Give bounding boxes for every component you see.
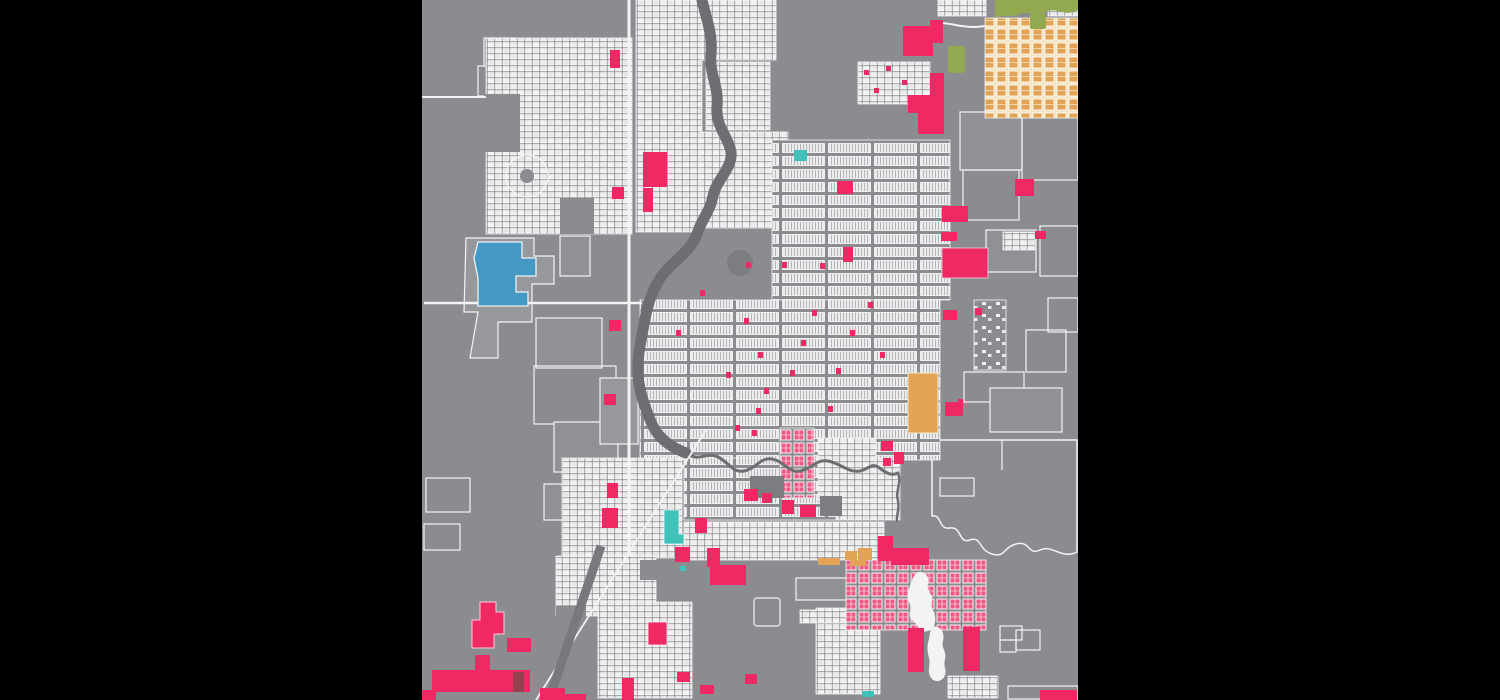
bottom-grid: [948, 676, 998, 698]
pink-parcel: [677, 672, 690, 682]
parcel-outline: [560, 236, 590, 276]
orange-parcel-large: [908, 373, 938, 433]
pink-parcel: [942, 206, 968, 222]
pink-parcel: [843, 247, 853, 262]
pink-parcel: [881, 441, 893, 451]
pink-parcel: [903, 26, 933, 56]
pink-fleck: [880, 352, 885, 358]
pink-fleck: [744, 318, 749, 324]
wash-blob: [928, 627, 946, 681]
pink-parcel: [710, 565, 746, 585]
maroon-parcel: [513, 672, 524, 692]
pink-parcel: [610, 50, 620, 68]
pink-fleck: [902, 80, 907, 85]
top-grid: [938, 0, 986, 16]
pink-fleck: [850, 330, 855, 336]
parcel-outline: [536, 318, 602, 368]
parcel-outline: [960, 112, 1022, 170]
pink-fleck: [752, 430, 757, 436]
pink-parcel: [643, 152, 667, 187]
grid-gap: [640, 560, 664, 580]
pink-parcel: [958, 399, 963, 415]
pink-parcel: [648, 622, 667, 645]
pink-fleck: [735, 425, 740, 431]
pink-parcel: [782, 500, 794, 514]
pink-parcel: [744, 489, 758, 501]
pink-fleck: [726, 372, 731, 378]
pink-parcel: [930, 20, 943, 43]
pink-parcel: [607, 483, 618, 498]
map-container: [422, 0, 1078, 700]
pink-fleck: [868, 302, 873, 308]
dark-parcel: [820, 496, 842, 516]
pink-parcel: [675, 547, 690, 562]
letterbox-background: [0, 0, 1500, 700]
green-parcel: [1030, 14, 1046, 29]
pink-fleck: [676, 330, 681, 336]
pink-parcel: [908, 95, 930, 113]
pink-fleck: [820, 263, 825, 269]
pink-parcel: [883, 458, 891, 466]
pink-parcel: [941, 232, 957, 241]
pink-parcel: [837, 181, 853, 194]
pink-parcel: [1035, 231, 1046, 239]
orange-subdivision: [985, 18, 1078, 118]
pink-parcel: [695, 518, 707, 533]
pink-parcel: [800, 505, 816, 517]
parcel-map: [422, 0, 1078, 700]
pink-fleck: [790, 370, 795, 376]
sw-subdivision-grid: [598, 602, 692, 698]
grid-gap: [484, 94, 520, 152]
pink-parcel: [918, 112, 944, 134]
pink-fleck: [746, 262, 751, 268]
teal-fleck: [862, 691, 874, 697]
pink-fleck: [801, 340, 806, 346]
pink-parcel: [609, 320, 621, 331]
pink-fleck: [700, 290, 705, 296]
pink-fleck: [836, 368, 841, 374]
small-grid: [1003, 232, 1035, 250]
pink-parcel: [540, 688, 565, 700]
orange-parcel-small: [818, 558, 840, 565]
pink-parcel: [564, 694, 586, 700]
pink-parcel: [963, 627, 980, 671]
pink-fleck: [758, 352, 763, 358]
pink-parcel-large: [942, 248, 988, 278]
pink-fleck: [764, 388, 769, 394]
orange-parcel-small: [850, 560, 866, 566]
pink-parcel: [1040, 690, 1077, 700]
pink-parcel: [602, 508, 618, 528]
circular-subdivision-center: [520, 169, 534, 183]
pink-fan-subdivision: [780, 428, 814, 498]
pink-fleck: [756, 408, 761, 414]
pink-parcel: [604, 394, 616, 405]
orange-parcel-small: [858, 548, 872, 560]
pink-parcel: [622, 678, 634, 700]
pink-fleck: [886, 66, 891, 71]
pink-parcel: [507, 638, 531, 652]
pink-parcel: [643, 188, 653, 212]
parcel-outline: [796, 578, 852, 600]
pink-parcel: [475, 655, 490, 670]
pink-fleck: [874, 88, 879, 93]
ne-city-grid: [772, 140, 950, 300]
grid-gap: [560, 198, 594, 234]
green-parcel: [948, 46, 965, 73]
orange-parcel-small: [845, 551, 857, 560]
pink-parcel: [943, 310, 957, 320]
teal-parcel: [794, 150, 807, 161]
pink-fleck: [812, 310, 817, 316]
pink-parcel: [975, 308, 982, 315]
pink-parcel: [878, 536, 893, 561]
pink-parcel: [745, 674, 757, 684]
parcel-outline: [990, 388, 1062, 432]
pink-parcel: [612, 187, 624, 199]
pink-parcel: [1015, 179, 1034, 196]
pink-fleck: [864, 70, 869, 75]
pink-parcel: [894, 452, 904, 464]
map-features: [422, 0, 1078, 700]
pink-fleck: [782, 262, 787, 268]
pink-parcel: [908, 628, 924, 672]
pink-parcel: [700, 685, 714, 694]
pink-parcel: [891, 548, 929, 565]
parcel-outline: [600, 378, 638, 444]
pink-parcel: [762, 493, 772, 503]
pink-fleck: [828, 406, 833, 412]
pink-parcel: [707, 548, 720, 567]
teal-fleck: [680, 566, 686, 571]
